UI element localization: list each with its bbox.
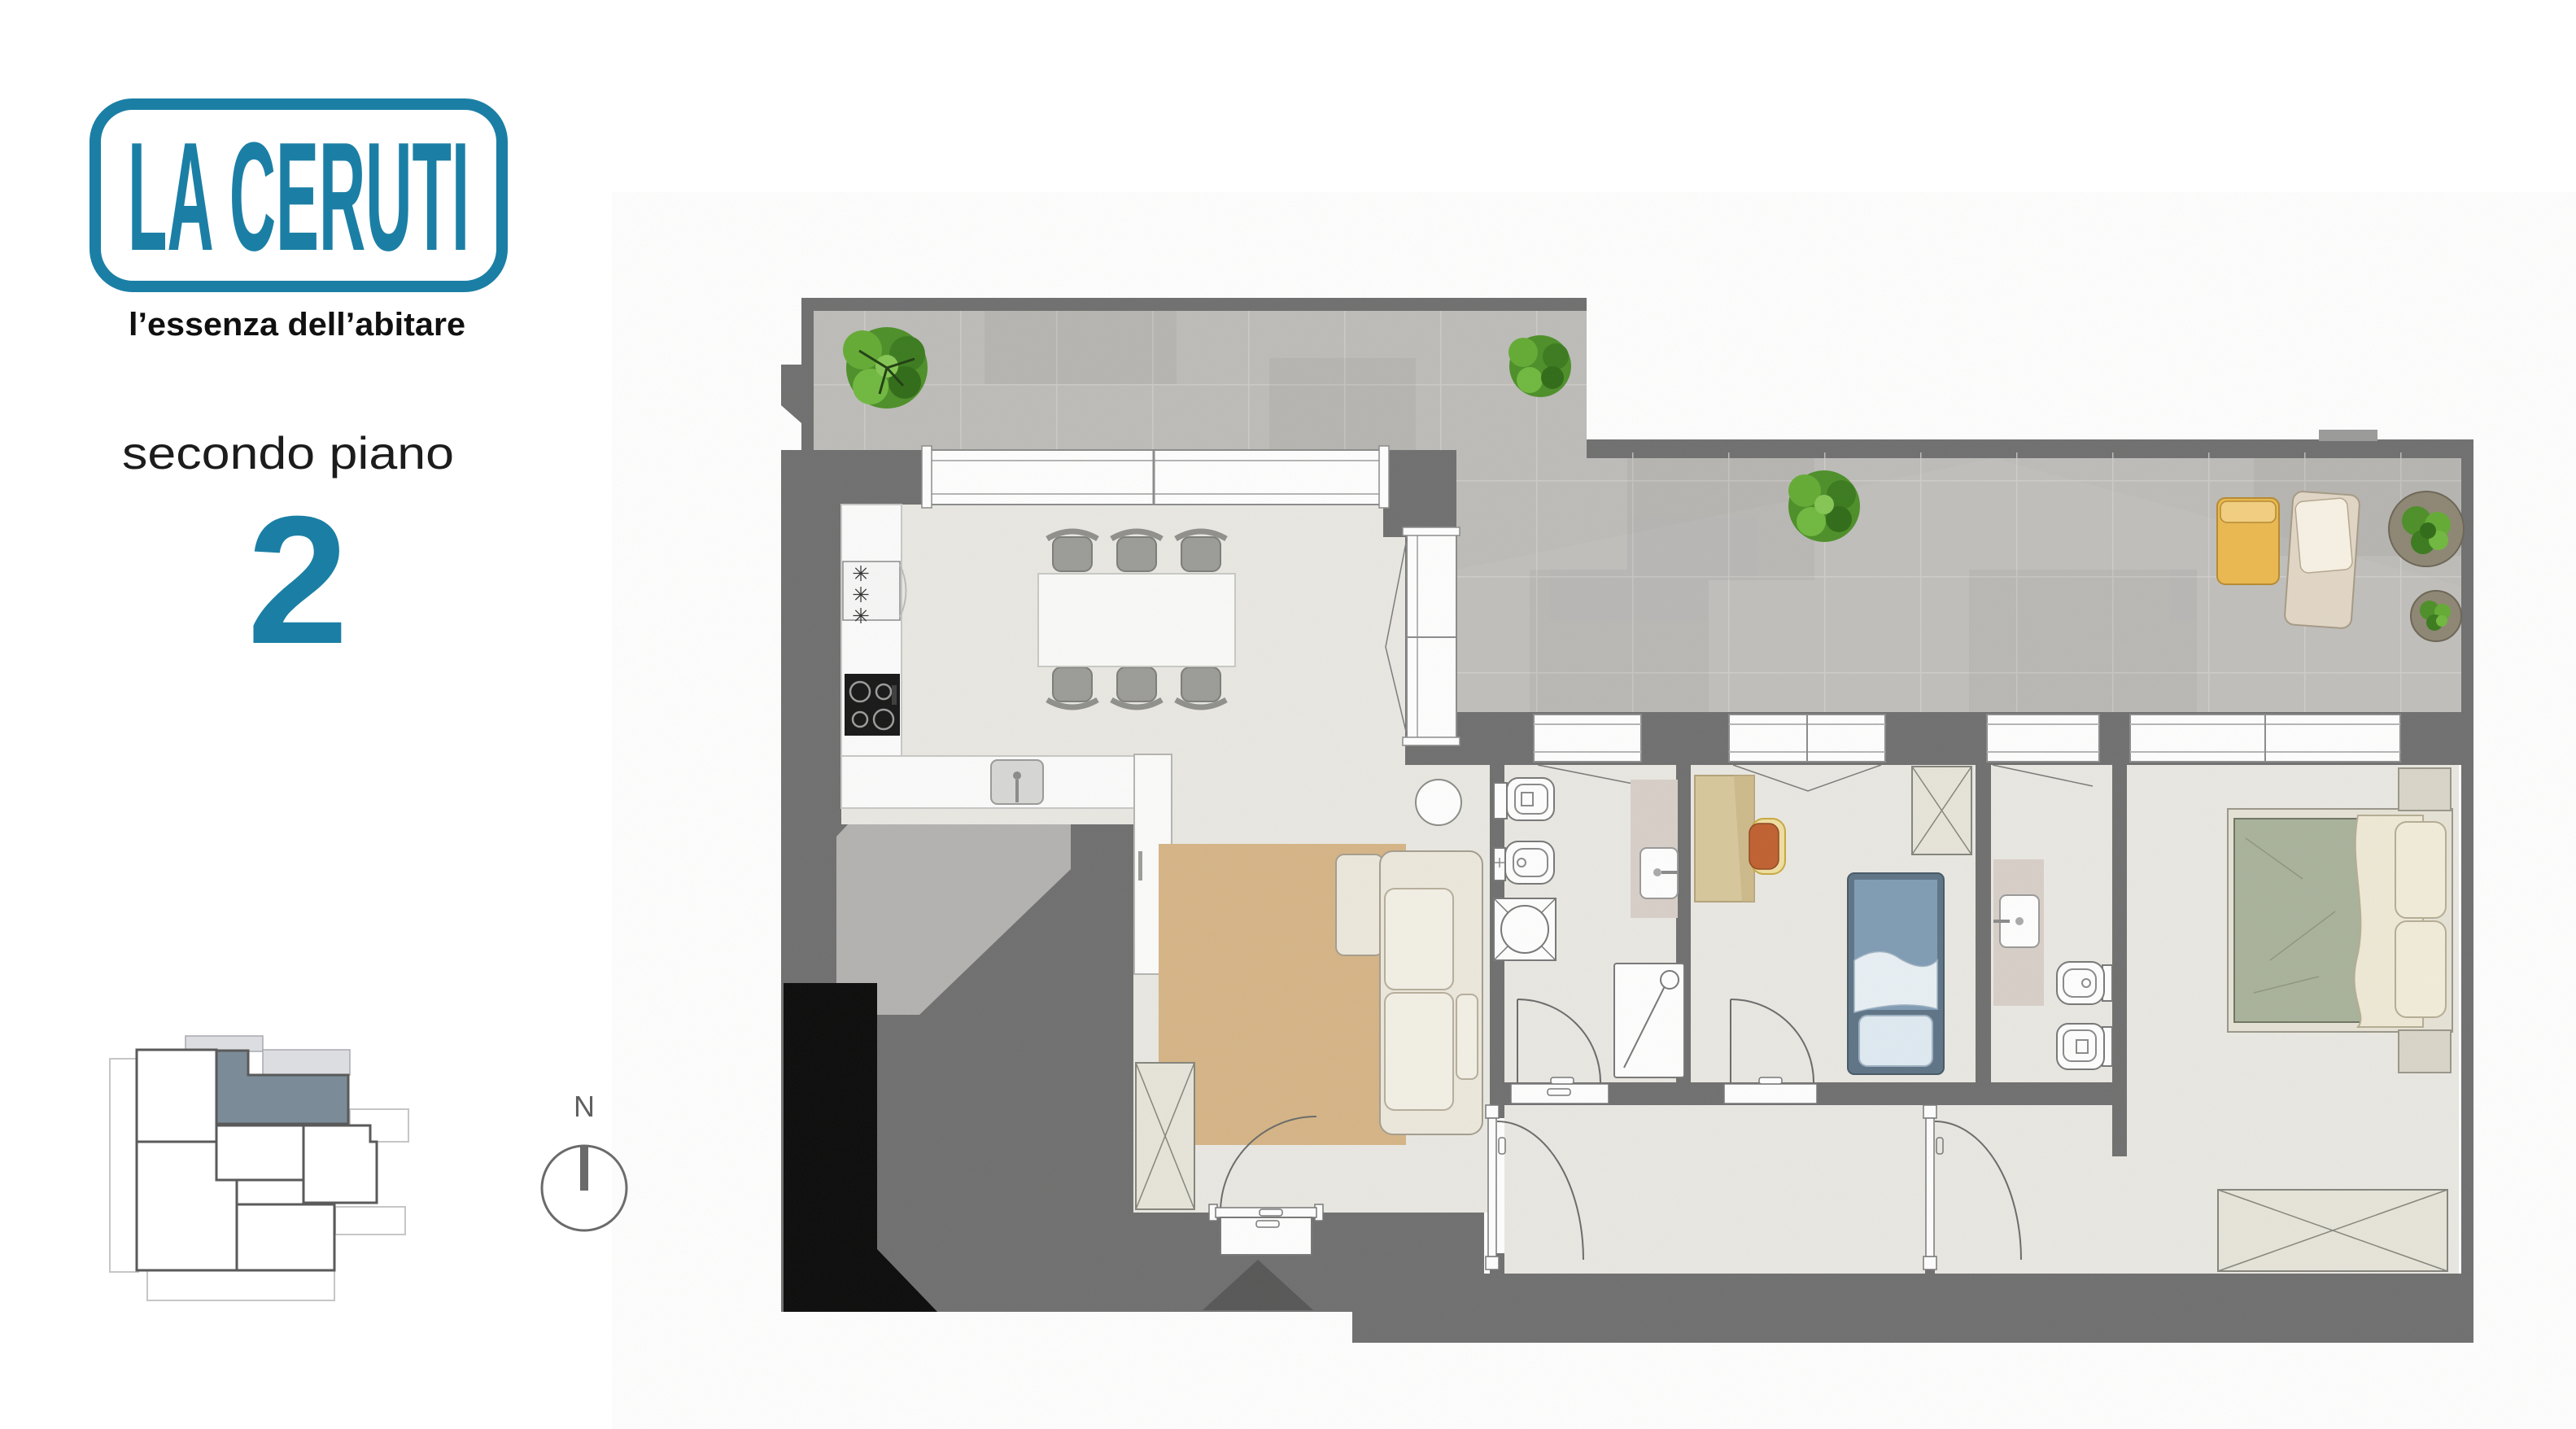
page: LA CERUTI l’essenza dell’abitare secondo…: [0, 0, 2576, 1429]
floor-texture: [781, 297, 2473, 1347]
compass-needle: [580, 1146, 588, 1191]
north-compass: N: [542, 1090, 627, 1230]
page-canvas: LA CERUTI l’essenza dell’abitare secondo…: [0, 0, 2576, 1429]
key-plan-unit-j: [237, 1204, 334, 1270]
north-label: N: [574, 1090, 595, 1123]
floor-number: 2: [247, 479, 349, 682]
logo-text: LA CERUTI: [128, 111, 469, 283]
floor-label: secondo piano: [122, 427, 454, 479]
floor-plan: ✳ ✳ ✳: [781, 297, 2473, 1347]
brand-tagline: l’essenza dell’abitare: [129, 307, 465, 343]
key-plan-light-wing: [110, 1059, 138, 1272]
key-plan: [110, 1036, 408, 1300]
logo: LA CERUTI: [95, 104, 502, 286]
key-plan-unit-h: [303, 1125, 377, 1203]
key-plan-terrace-b: [263, 1050, 350, 1075]
key-plan-unit-e: [216, 1125, 303, 1180]
key-plan-light-bottom: [147, 1270, 334, 1300]
key-plan-light-right: [335, 1207, 405, 1235]
key-plan-unit-b: [137, 1050, 216, 1142]
